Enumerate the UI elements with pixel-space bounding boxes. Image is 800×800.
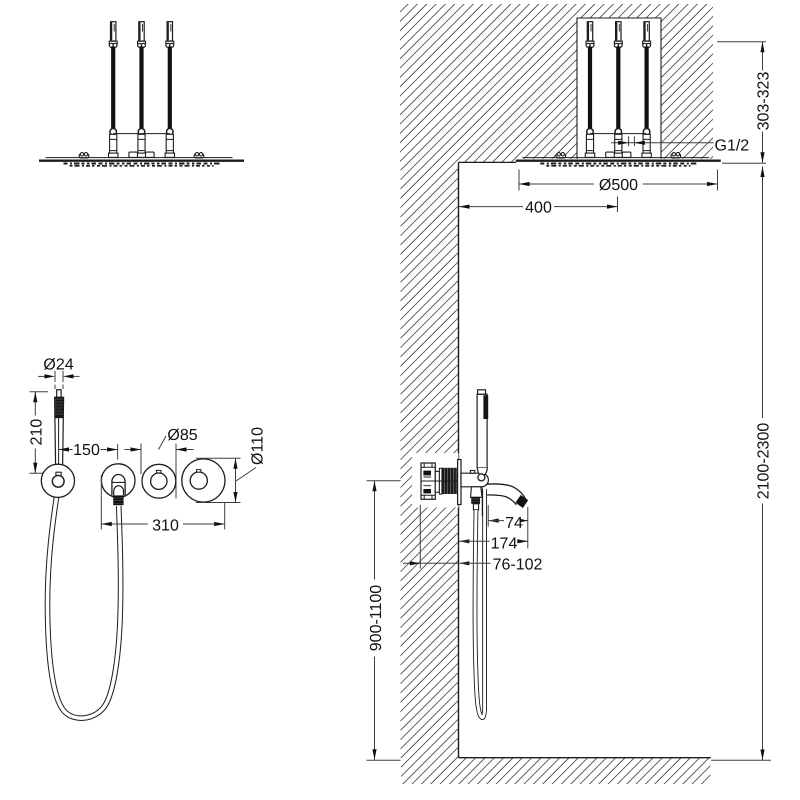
svg-text:400: 400: [525, 200, 552, 217]
svg-text:2100-2300: 2100-2300: [756, 423, 773, 500]
svg-text:150: 150: [73, 442, 100, 459]
svg-text:76-102: 76-102: [493, 557, 543, 574]
svg-text:Ø110: Ø110: [250, 427, 267, 465]
svg-text:303-323: 303-323: [756, 72, 773, 131]
svg-text:174: 174: [491, 536, 518, 553]
svg-text:G1/2: G1/2: [715, 137, 750, 154]
svg-text:Ø24: Ø24: [43, 357, 73, 374]
svg-text:210: 210: [29, 419, 46, 446]
svg-text:Ø85: Ø85: [167, 427, 197, 444]
svg-text:310: 310: [152, 518, 179, 535]
svg-text:Ø500: Ø500: [599, 177, 638, 194]
svg-text:900-1100: 900-1100: [368, 585, 385, 652]
svg-text:74: 74: [505, 515, 523, 532]
